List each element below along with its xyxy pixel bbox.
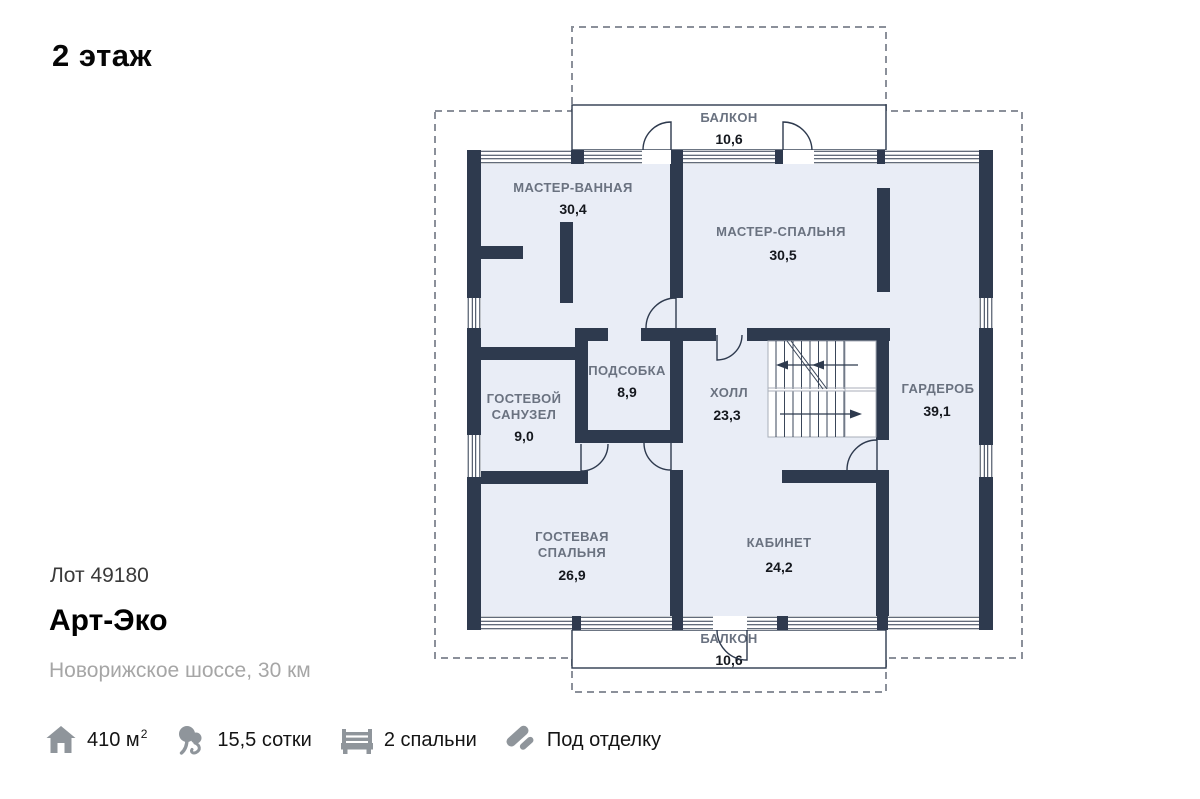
feature-area: 410 м2 bbox=[44, 723, 147, 757]
roller-icon bbox=[504, 723, 538, 757]
house-icon bbox=[44, 723, 78, 757]
feature-area-text: 410 м2 bbox=[87, 729, 147, 752]
room-label-cabinet: КАБИНЕТ bbox=[747, 535, 812, 550]
project-name: Арт-Эко bbox=[49, 604, 168, 638]
balcony-top-area: 10,6 bbox=[715, 131, 742, 147]
feature-area-value: 410 м bbox=[87, 729, 140, 751]
room-area-guest-bedroom: 26,9 bbox=[558, 567, 585, 583]
balcony-bottom-label: БАЛКОН bbox=[700, 631, 757, 646]
room-area-guest-wc: 9,0 bbox=[514, 428, 534, 444]
room-area-utility: 8,9 bbox=[617, 384, 637, 400]
balcony-bottom: БАЛКОН 10,6 bbox=[572, 630, 886, 668]
room-area-master-bedroom: 30,5 bbox=[769, 247, 796, 263]
room-area-wardrobe: 39,1 bbox=[923, 403, 950, 419]
room-area-hall: 23,3 bbox=[713, 407, 740, 423]
room-label-guest-wc-1: ГОСТЕВОЙ bbox=[487, 391, 562, 406]
feature-finish-text: Под отделку bbox=[547, 729, 661, 752]
feature-bedrooms-text: 2 спальни bbox=[384, 729, 477, 752]
room-label-guest-wc-2: САНУЗЕЛ bbox=[492, 407, 557, 422]
room-area-cabinet: 24,2 bbox=[765, 559, 792, 575]
tree-icon bbox=[174, 723, 208, 757]
staircase bbox=[768, 341, 876, 437]
room-label-wardrobe: ГАРДЕРОБ bbox=[902, 381, 975, 396]
balcony-top: БАЛКОН 10,6 bbox=[572, 105, 886, 150]
features-row: 410 м2 15,5 сотки 2 спальни bbox=[44, 720, 688, 760]
feature-land: 15,5 сотки bbox=[174, 723, 311, 757]
location-text: Новорижское шоссе, 30 км bbox=[49, 659, 311, 683]
balcony-top-label: БАЛКОН bbox=[700, 110, 757, 125]
room-label-guest-bedroom-2: СПАЛЬНЯ bbox=[538, 545, 606, 560]
room-label-master-bedroom: МАСТЕР-СПАЛЬНЯ bbox=[716, 224, 846, 239]
room-label-utility: ПОДСОБКА bbox=[588, 363, 666, 378]
room-label-master-bath: МАСТЕР-ВАННАЯ bbox=[513, 180, 632, 195]
feature-finish: Под отделку bbox=[504, 723, 661, 757]
feature-bedrooms: 2 спальни bbox=[339, 723, 477, 757]
lot-number: Лот 49180 bbox=[50, 564, 149, 588]
feature-land-text: 15,5 сотки bbox=[217, 729, 311, 752]
bed-icon bbox=[339, 723, 375, 757]
feature-area-sup: 2 bbox=[141, 727, 148, 741]
room-label-guest-bedroom-1: ГОСТЕВАЯ bbox=[535, 529, 609, 544]
room-area-master-bath: 30,4 bbox=[559, 201, 586, 217]
room-label-hall: ХОЛЛ bbox=[710, 385, 748, 400]
